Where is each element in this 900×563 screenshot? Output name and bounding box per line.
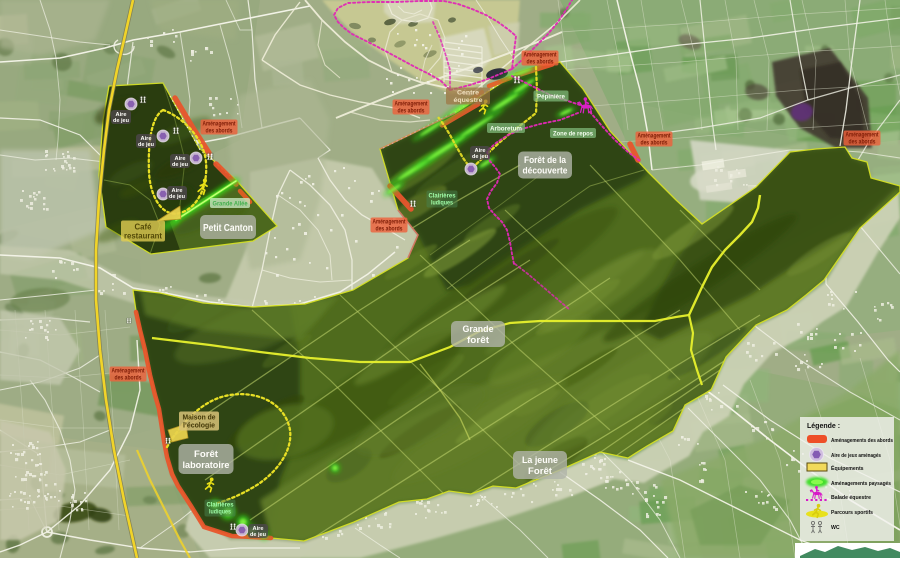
svg-text:Équipements: Équipements xyxy=(831,464,864,472)
svg-text:Parcours sportifs: Parcours sportifs xyxy=(831,510,873,516)
svg-text:Balade équestre: Balade équestre xyxy=(831,495,871,501)
svg-text:WC: WC xyxy=(831,525,840,531)
svg-text:Aménagements paysagés: Aménagements paysagés xyxy=(831,481,891,487)
svg-text:Aménagements des abords: Aménagements des abords xyxy=(831,438,893,444)
svg-text:Légende :: Légende : xyxy=(807,423,840,430)
svg-text:Aire de jeux aménagés: Aire de jeux aménagés xyxy=(831,453,881,459)
